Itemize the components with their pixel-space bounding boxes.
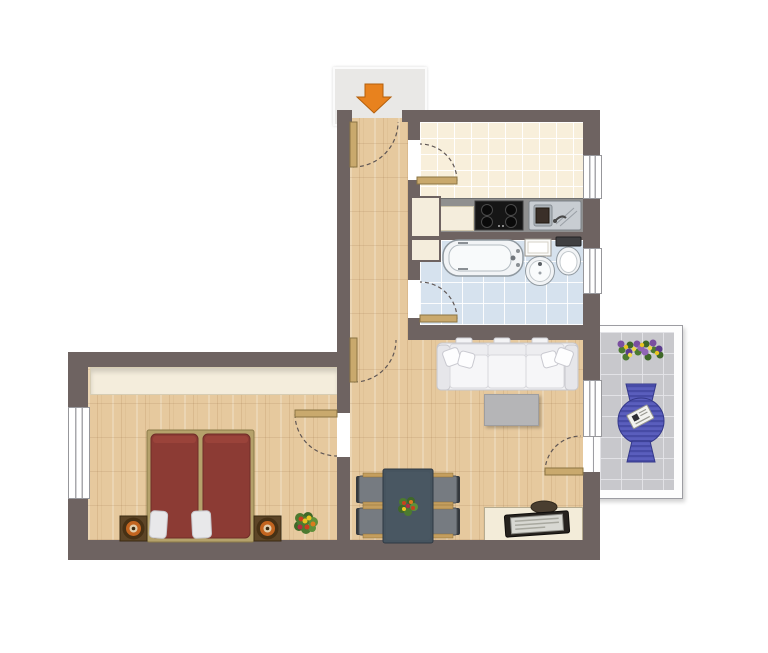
wall-right-4 <box>583 472 600 540</box>
wardrobe <box>90 367 339 395</box>
coffee-table <box>484 394 539 426</box>
wall-bedroom-left-upper <box>68 352 88 407</box>
kitchen-tall-cabinet <box>410 196 441 238</box>
kitchen-counter-cabinet <box>440 206 474 231</box>
wall-top <box>402 110 600 122</box>
balcony-floor <box>600 332 674 490</box>
wall-kitchen-divider-top <box>408 122 420 140</box>
wall-bedroom-top <box>68 352 350 367</box>
wall-kitchen-bath <box>420 232 600 240</box>
wall-right-1 <box>583 110 600 155</box>
wall-hallway-left <box>337 110 350 413</box>
floor-hallway <box>350 118 408 348</box>
floor-bathroom <box>420 240 583 325</box>
wall-living-top <box>408 325 600 340</box>
window-bedroom <box>68 407 90 499</box>
wall-bedroom-right <box>337 457 350 540</box>
wall-right-2 <box>583 197 600 248</box>
wall-bottom <box>68 540 600 560</box>
window-bathroom <box>583 248 602 294</box>
desk <box>484 507 583 543</box>
window-kitchen <box>583 155 602 199</box>
bathroom-cabinet <box>410 238 441 262</box>
floor-plan <box>0 0 768 653</box>
wall-bedroom-left-lower <box>68 497 88 542</box>
window-living-room <box>583 380 602 437</box>
